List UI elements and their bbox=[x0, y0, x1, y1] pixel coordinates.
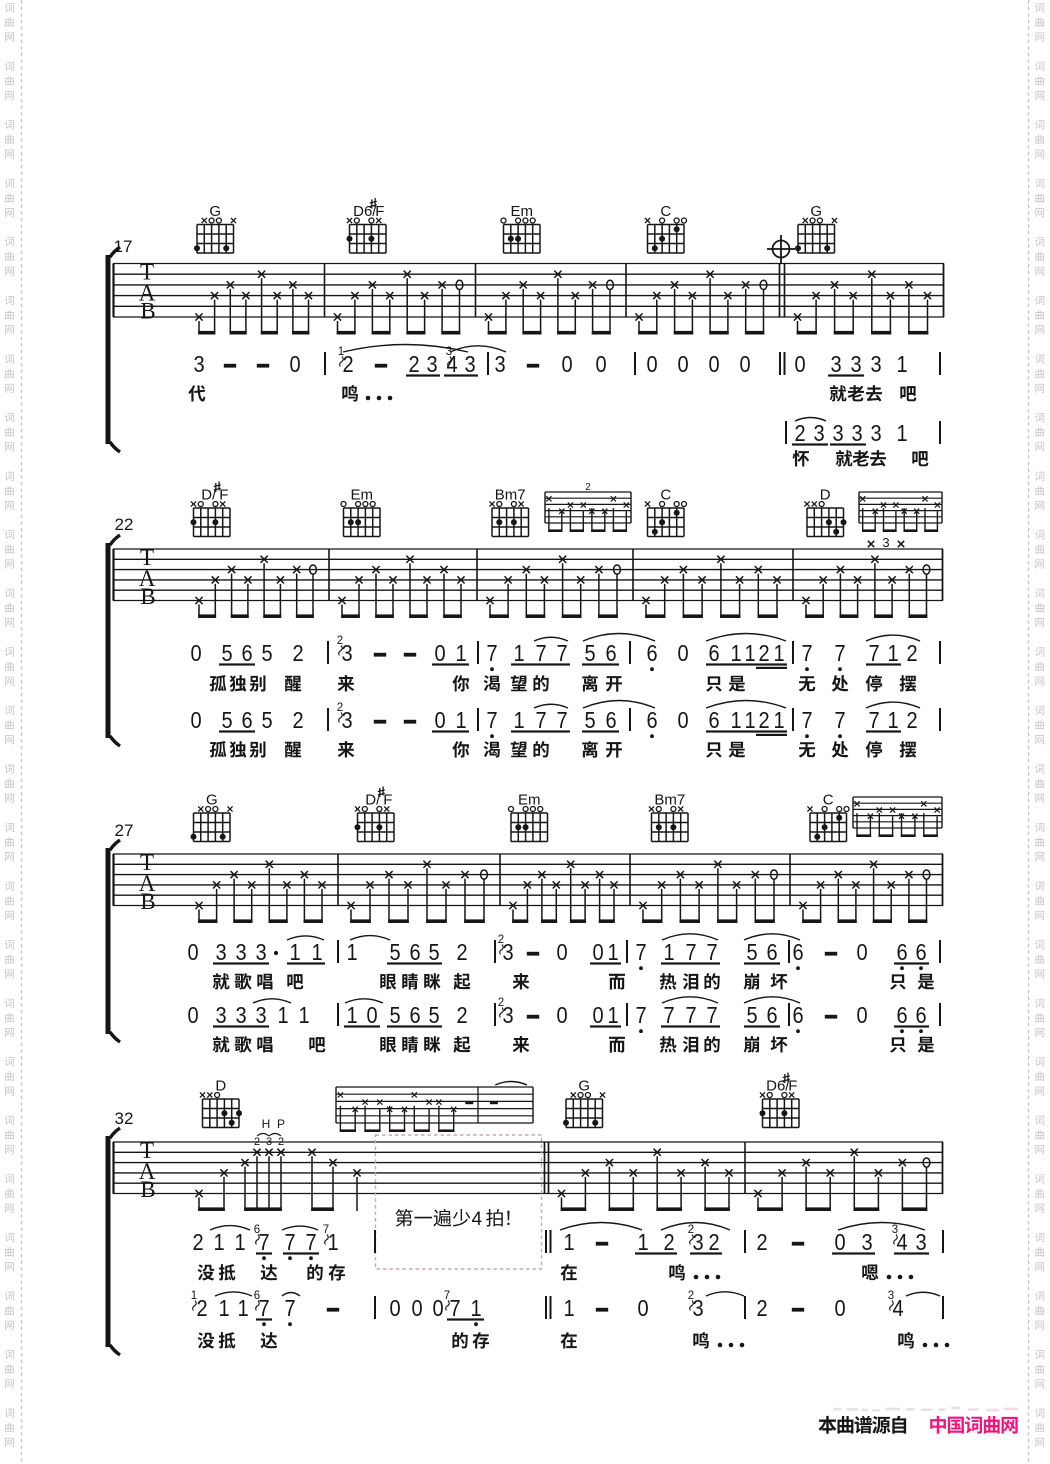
svg-text:0: 0 bbox=[592, 939, 603, 966]
svg-text:2: 2 bbox=[456, 1002, 467, 1029]
svg-text:3: 3 bbox=[446, 346, 452, 358]
svg-text:7: 7 bbox=[685, 1002, 696, 1029]
svg-text:0: 0 bbox=[411, 1295, 422, 1322]
svg-text:5: 5 bbox=[428, 939, 439, 966]
svg-text:7: 7 bbox=[834, 640, 845, 667]
svg-text:5: 5 bbox=[261, 707, 272, 734]
svg-text:1: 1 bbox=[234, 1229, 245, 1256]
svg-text:2: 2 bbox=[337, 635, 343, 647]
svg-text:1: 1 bbox=[213, 1229, 224, 1256]
svg-text:0: 0 bbox=[595, 351, 606, 378]
svg-text:6: 6 bbox=[646, 640, 657, 667]
svg-text:1: 1 bbox=[730, 707, 741, 734]
svg-text:1: 1 bbox=[607, 1002, 618, 1029]
svg-text:0: 0 bbox=[389, 1295, 400, 1322]
svg-text:B: B bbox=[140, 584, 155, 609]
svg-text:1: 1 bbox=[887, 640, 898, 667]
svg-text:2: 2 bbox=[278, 1136, 284, 1148]
svg-text:3: 3 bbox=[850, 351, 861, 378]
svg-text:6: 6 bbox=[254, 1290, 260, 1302]
svg-text:5: 5 bbox=[389, 939, 400, 966]
svg-text:0: 0 bbox=[289, 351, 300, 378]
svg-text:0: 0 bbox=[187, 939, 198, 966]
svg-text:6: 6 bbox=[896, 1002, 907, 1029]
svg-text:2: 2 bbox=[498, 997, 504, 1009]
svg-text:3: 3 bbox=[882, 535, 889, 550]
svg-text:2: 2 bbox=[906, 707, 917, 734]
svg-text:1: 1 bbox=[607, 939, 618, 966]
svg-text:5: 5 bbox=[746, 1002, 757, 1029]
svg-text:7: 7 bbox=[449, 1295, 460, 1322]
svg-text:6: 6 bbox=[409, 939, 420, 966]
svg-text:2: 2 bbox=[688, 1224, 694, 1236]
svg-text:2: 2 bbox=[758, 707, 769, 734]
svg-text:5: 5 bbox=[221, 640, 232, 667]
svg-text:2: 2 bbox=[292, 707, 303, 734]
svg-text:0: 0 bbox=[677, 351, 688, 378]
svg-text:6: 6 bbox=[241, 640, 252, 667]
svg-text:3: 3 bbox=[215, 939, 226, 966]
svg-text:3: 3 bbox=[235, 1002, 246, 1029]
svg-text:1: 1 bbox=[513, 707, 524, 734]
svg-text:0: 0 bbox=[432, 1295, 443, 1322]
svg-text:7: 7 bbox=[305, 1229, 316, 1256]
svg-text:0: 0 bbox=[677, 640, 688, 667]
svg-text:3: 3 bbox=[813, 420, 824, 447]
svg-text:7: 7 bbox=[284, 1229, 295, 1256]
svg-text:0: 0 bbox=[856, 939, 867, 966]
svg-text:0: 0 bbox=[834, 1295, 845, 1322]
svg-text:Em: Em bbox=[518, 792, 541, 809]
svg-text:Em: Em bbox=[511, 203, 534, 220]
svg-text:1: 1 bbox=[237, 1295, 248, 1322]
svg-text:7: 7 bbox=[663, 1002, 674, 1029]
svg-text:7: 7 bbox=[486, 707, 497, 734]
svg-text:1: 1 bbox=[338, 346, 344, 358]
svg-text:17: 17 bbox=[114, 237, 133, 256]
svg-text:2: 2 bbox=[756, 1229, 767, 1256]
svg-text:6: 6 bbox=[605, 640, 616, 667]
svg-text:2: 2 bbox=[498, 934, 504, 946]
svg-text:7: 7 bbox=[556, 640, 567, 667]
svg-text:1: 1 bbox=[346, 939, 357, 966]
svg-text:2: 2 bbox=[758, 640, 769, 667]
svg-text:6: 6 bbox=[241, 707, 252, 734]
svg-text:7: 7 bbox=[801, 707, 812, 734]
svg-text:2: 2 bbox=[292, 640, 303, 667]
svg-text:3: 3 bbox=[915, 1229, 926, 1256]
svg-text:1: 1 bbox=[730, 640, 741, 667]
svg-text:1: 1 bbox=[311, 939, 322, 966]
svg-text:1: 1 bbox=[744, 707, 755, 734]
svg-text:6: 6 bbox=[792, 1002, 803, 1029]
svg-text:2: 2 bbox=[756, 1295, 767, 1322]
svg-text:3: 3 bbox=[870, 351, 881, 378]
svg-text:3: 3 bbox=[464, 351, 475, 378]
svg-text:5: 5 bbox=[746, 939, 757, 966]
svg-text:7: 7 bbox=[706, 1002, 717, 1029]
svg-text:7: 7 bbox=[535, 640, 546, 667]
svg-text:0: 0 bbox=[637, 1295, 648, 1322]
svg-text:7: 7 bbox=[635, 939, 646, 966]
svg-text:2: 2 bbox=[456, 939, 467, 966]
svg-text:22: 22 bbox=[115, 515, 134, 534]
svg-text:5: 5 bbox=[584, 640, 595, 667]
svg-text:2: 2 bbox=[708, 1229, 719, 1256]
svg-text:1: 1 bbox=[470, 1295, 481, 1322]
svg-text:6: 6 bbox=[915, 1002, 926, 1029]
svg-text:1: 1 bbox=[773, 707, 784, 734]
svg-text:3: 3 bbox=[426, 351, 437, 378]
svg-text:7: 7 bbox=[868, 707, 879, 734]
svg-text:3: 3 bbox=[215, 1002, 226, 1029]
svg-text:6: 6 bbox=[766, 1002, 777, 1029]
svg-text:0: 0 bbox=[366, 1002, 377, 1029]
svg-text:0: 0 bbox=[190, 640, 201, 667]
svg-text:0: 0 bbox=[190, 707, 201, 734]
svg-text:3: 3 bbox=[235, 939, 246, 966]
svg-text:3: 3 bbox=[892, 1224, 898, 1236]
svg-text:1: 1 bbox=[298, 1002, 309, 1029]
svg-text:1: 1 bbox=[455, 640, 466, 667]
svg-text:5: 5 bbox=[389, 1002, 400, 1029]
svg-text:1: 1 bbox=[663, 939, 674, 966]
svg-text:2: 2 bbox=[337, 702, 343, 714]
svg-text:0: 0 bbox=[646, 351, 657, 378]
svg-text:3: 3 bbox=[266, 1136, 272, 1148]
svg-text:3: 3 bbox=[851, 420, 862, 447]
svg-text:P: P bbox=[277, 1117, 285, 1131]
svg-text:7: 7 bbox=[556, 707, 567, 734]
svg-text:7: 7 bbox=[868, 640, 879, 667]
svg-text:7: 7 bbox=[444, 1290, 450, 1302]
svg-text:6: 6 bbox=[708, 707, 719, 734]
svg-text:3: 3 bbox=[870, 420, 881, 447]
svg-text:3: 3 bbox=[861, 1229, 872, 1256]
svg-text:3: 3 bbox=[832, 420, 843, 447]
svg-text:1: 1 bbox=[887, 707, 898, 734]
svg-text:0: 0 bbox=[856, 1002, 867, 1029]
svg-text:Em: Em bbox=[351, 487, 374, 504]
svg-text:2: 2 bbox=[408, 351, 419, 378]
svg-text:7: 7 bbox=[284, 1295, 295, 1322]
svg-text:1: 1 bbox=[218, 1295, 229, 1322]
svg-text:6: 6 bbox=[915, 939, 926, 966]
svg-text:1: 1 bbox=[896, 420, 907, 447]
svg-text:0: 0 bbox=[592, 1002, 603, 1029]
svg-text:2: 2 bbox=[196, 1295, 207, 1322]
svg-text:5: 5 bbox=[221, 707, 232, 734]
svg-text:32: 32 bbox=[115, 1109, 134, 1128]
svg-text:7: 7 bbox=[486, 640, 497, 667]
svg-text:0: 0 bbox=[794, 351, 805, 378]
svg-text:2: 2 bbox=[585, 482, 591, 493]
svg-text:H: H bbox=[262, 1117, 271, 1131]
svg-text:2: 2 bbox=[906, 640, 917, 667]
svg-text:1: 1 bbox=[563, 1295, 574, 1322]
svg-text:3: 3 bbox=[255, 939, 266, 966]
svg-text:2: 2 bbox=[663, 1229, 674, 1256]
svg-text:6: 6 bbox=[708, 640, 719, 667]
svg-text:3: 3 bbox=[193, 351, 204, 378]
svg-text:6: 6 bbox=[792, 939, 803, 966]
svg-text:1: 1 bbox=[455, 707, 466, 734]
svg-text:1: 1 bbox=[346, 1002, 357, 1029]
svg-text:3: 3 bbox=[830, 351, 841, 378]
svg-text:0: 0 bbox=[187, 1002, 198, 1029]
svg-text:3: 3 bbox=[494, 351, 505, 378]
svg-text:7: 7 bbox=[834, 707, 845, 734]
svg-text:27: 27 bbox=[115, 821, 134, 840]
svg-text:7: 7 bbox=[635, 1002, 646, 1029]
svg-text:0: 0 bbox=[739, 351, 750, 378]
svg-text:1: 1 bbox=[637, 1229, 648, 1256]
svg-text:6: 6 bbox=[646, 707, 657, 734]
svg-text:B: B bbox=[140, 889, 155, 914]
svg-text:1: 1 bbox=[744, 640, 755, 667]
svg-text:4: 4 bbox=[472, 1209, 483, 1230]
svg-text:1: 1 bbox=[289, 939, 300, 966]
svg-text:0: 0 bbox=[561, 351, 572, 378]
svg-text:2: 2 bbox=[254, 1136, 260, 1148]
svg-text:B: B bbox=[140, 299, 155, 324]
svg-text:0: 0 bbox=[434, 640, 445, 667]
svg-text:B: B bbox=[140, 1177, 155, 1202]
svg-text:7: 7 bbox=[323, 1224, 329, 1236]
svg-text:5: 5 bbox=[584, 707, 595, 734]
svg-text:6: 6 bbox=[766, 939, 777, 966]
svg-text:3: 3 bbox=[255, 1002, 266, 1029]
svg-text:7: 7 bbox=[535, 707, 546, 734]
svg-text:1: 1 bbox=[773, 640, 784, 667]
svg-text:6: 6 bbox=[409, 1002, 420, 1029]
svg-text:5: 5 bbox=[428, 1002, 439, 1029]
svg-text:3: 3 bbox=[888, 1290, 894, 1302]
svg-text:0: 0 bbox=[708, 351, 719, 378]
svg-text:1: 1 bbox=[563, 1229, 574, 1256]
svg-text:0: 0 bbox=[434, 707, 445, 734]
svg-text:6: 6 bbox=[896, 939, 907, 966]
svg-text:1: 1 bbox=[896, 351, 907, 378]
svg-text:0: 0 bbox=[556, 939, 567, 966]
svg-text:7: 7 bbox=[685, 939, 696, 966]
svg-text:2: 2 bbox=[192, 1229, 203, 1256]
svg-text:1: 1 bbox=[191, 1290, 197, 1302]
svg-text:2: 2 bbox=[688, 1290, 694, 1302]
svg-text:6: 6 bbox=[254, 1224, 260, 1236]
svg-text:1: 1 bbox=[513, 640, 524, 667]
svg-text:7: 7 bbox=[706, 939, 717, 966]
svg-text:1: 1 bbox=[277, 1002, 288, 1029]
svg-text:7: 7 bbox=[801, 640, 812, 667]
svg-text:6: 6 bbox=[605, 707, 616, 734]
svg-text:5: 5 bbox=[261, 640, 272, 667]
svg-text:0: 0 bbox=[556, 1002, 567, 1029]
svg-text:0: 0 bbox=[834, 1229, 845, 1256]
svg-text:2: 2 bbox=[794, 420, 805, 447]
svg-text:0: 0 bbox=[677, 707, 688, 734]
